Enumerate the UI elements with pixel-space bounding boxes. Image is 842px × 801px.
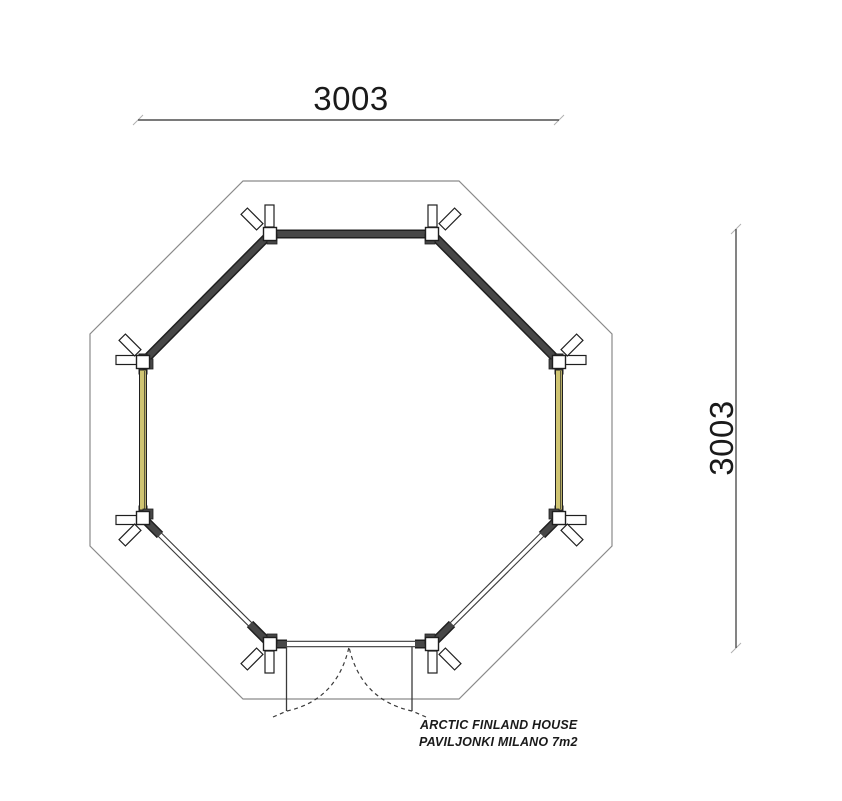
wall-northeast bbox=[431, 233, 558, 361]
corner-post-south-west bbox=[241, 634, 277, 673]
corner-posts bbox=[116, 205, 586, 673]
corner-post-south-east bbox=[425, 634, 461, 673]
wall-south bbox=[266, 641, 436, 646]
west-glazing-panel bbox=[140, 370, 147, 510]
dimension-top: 3003 bbox=[133, 80, 564, 125]
entrance-double-door bbox=[273, 647, 426, 717]
door-leaf-left-swing bbox=[273, 647, 349, 717]
plan-title: ARCTIC FINLAND HOUSE PAVILJONKI MILANO 7… bbox=[419, 718, 578, 749]
east-glazing-panel bbox=[556, 370, 563, 510]
door-leaf-right-swing bbox=[349, 647, 426, 717]
dimension-right-value: 3003 bbox=[703, 400, 740, 475]
wall-southeast bbox=[430, 516, 560, 645]
wall-northwest bbox=[144, 233, 271, 361]
floor-plan-canvas: 3003 3003 bbox=[0, 0, 842, 801]
wall-east-glazing bbox=[555, 354, 563, 524]
corner-post-north-east bbox=[425, 205, 461, 244]
plan-title-line1: ARCTIC FINLAND HOUSE bbox=[419, 718, 578, 732]
floor-plan-drawing: 3003 3003 bbox=[0, 0, 842, 801]
dimension-top-value: 3003 bbox=[313, 80, 388, 117]
roof-overhang-outline bbox=[90, 181, 612, 699]
plan-title-line2: PAVILJONKI MILANO 7m2 bbox=[419, 735, 578, 749]
wall-southwest bbox=[141, 516, 271, 645]
wall-west-glazing bbox=[139, 354, 147, 524]
corner-post-north-west bbox=[241, 205, 277, 244]
dimension-right: 3003 bbox=[703, 224, 741, 653]
